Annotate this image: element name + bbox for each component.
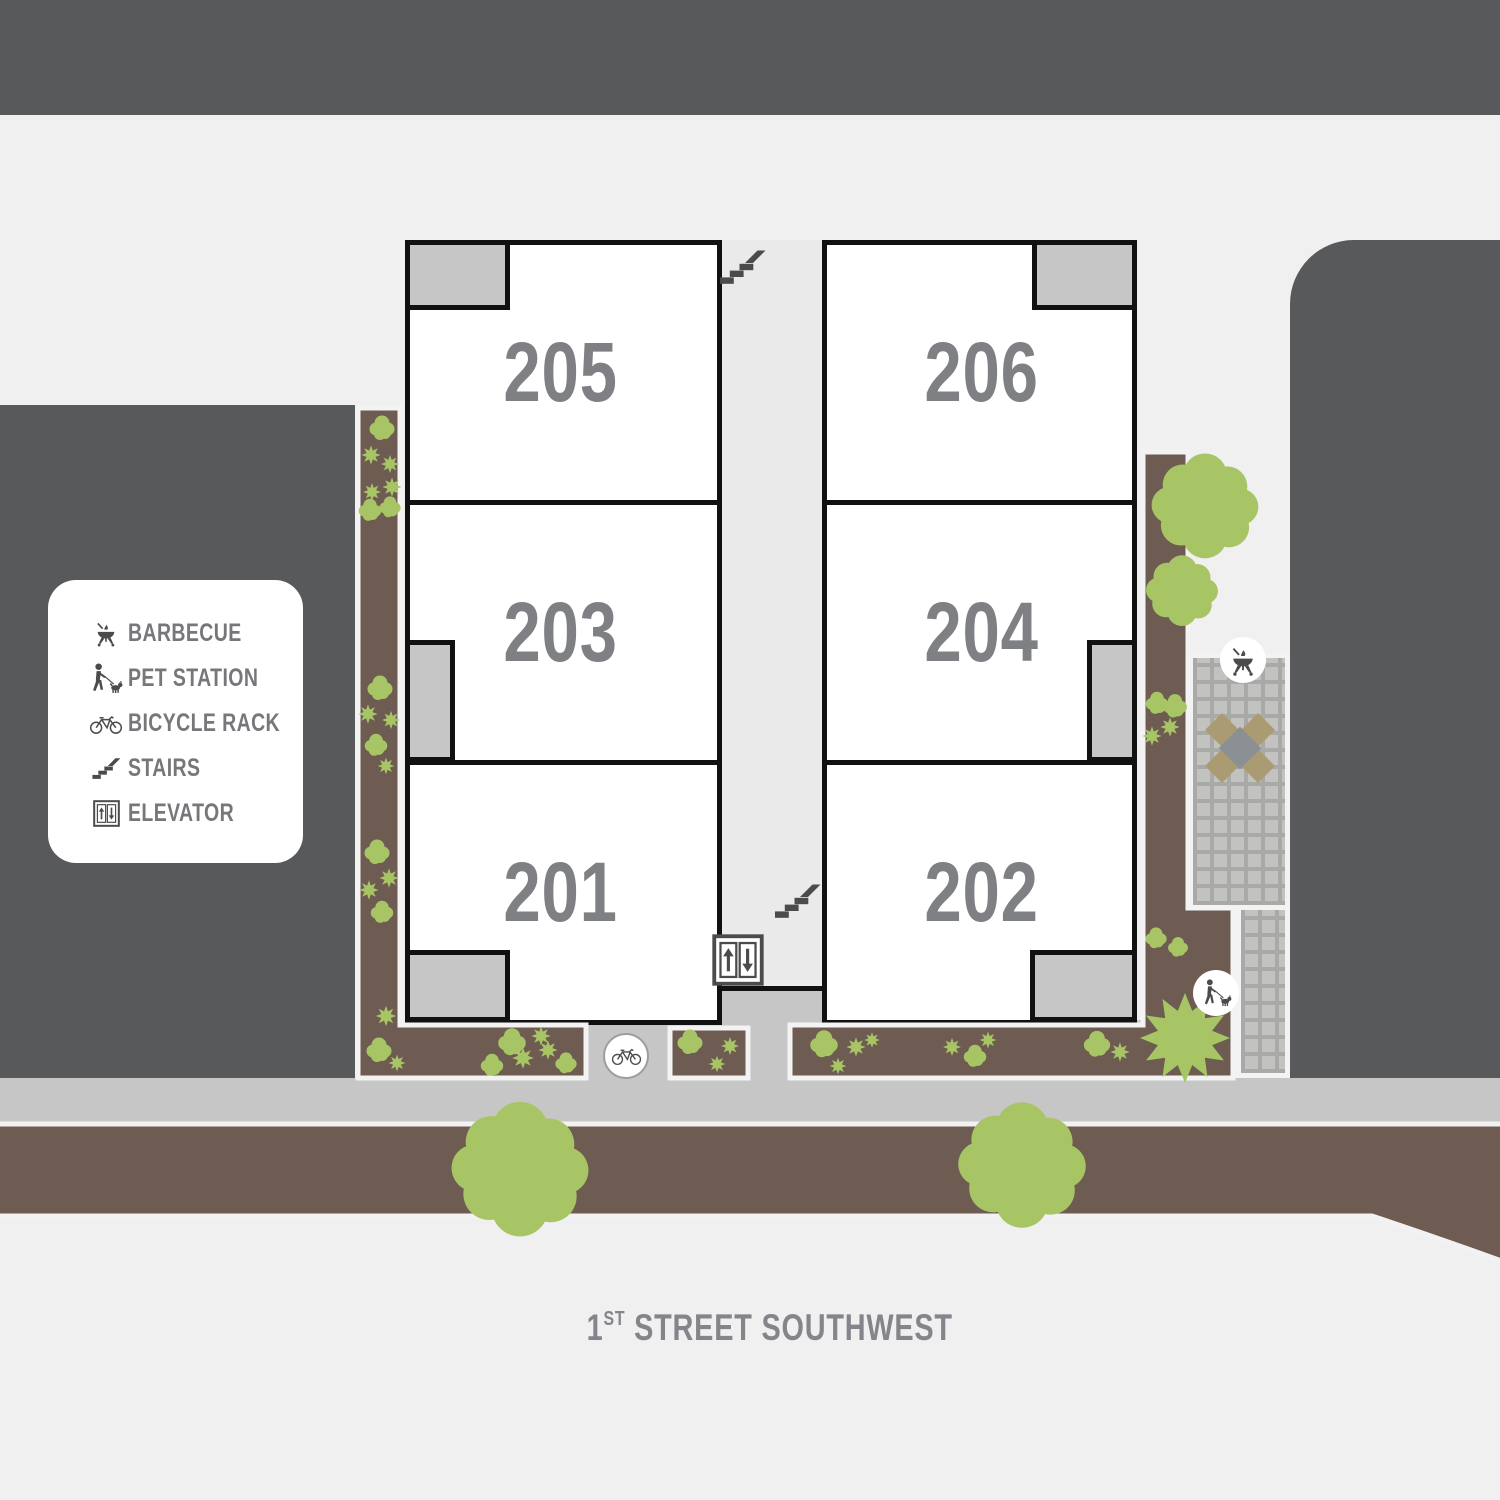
street-number: 1 xyxy=(587,1307,604,1348)
barbecue-marker xyxy=(1220,637,1266,683)
pet-station-marker xyxy=(1193,970,1239,1016)
legend-label: BARBECUE xyxy=(128,619,242,648)
patio-tiles xyxy=(1188,653,1290,910)
unit-206: 206 xyxy=(832,245,1132,500)
patio-tiles xyxy=(1236,905,1290,1078)
stairs-icon xyxy=(720,250,766,284)
tree xyxy=(1152,453,1259,558)
bicycle-rack-icon xyxy=(84,713,128,735)
unit-number: 206 xyxy=(925,324,1040,421)
east-building-block xyxy=(1290,240,1500,1078)
legend-item-bicycle-rack: BICYCLE RACK xyxy=(84,701,303,746)
unit-203: 203 xyxy=(410,505,712,760)
pet-station-icon xyxy=(84,663,128,694)
unit-202: 202 xyxy=(832,765,1132,1020)
unit-number: 202 xyxy=(925,844,1040,941)
elevator-icon xyxy=(712,934,764,986)
bicycle-rack-marker xyxy=(603,1033,649,1079)
unit-number: 203 xyxy=(504,584,619,681)
legend-label: BICYCLE RACK xyxy=(128,709,280,738)
elevator-icon xyxy=(84,800,128,827)
barbecue-icon xyxy=(84,620,128,647)
stairs-icon xyxy=(84,758,128,779)
legend-item-barbecue: BARBECUE xyxy=(84,611,303,656)
unit-number: 205 xyxy=(504,324,619,421)
unit-number: 201 xyxy=(504,844,619,941)
legend-label: ELEVATOR xyxy=(128,799,234,828)
legend-label: STAIRS xyxy=(128,754,200,783)
front-walkway xyxy=(586,1020,1146,1080)
bicycle-rack-icon xyxy=(611,1046,642,1066)
legend-item-elevator: ELEVATOR xyxy=(84,791,303,836)
street-ordinal: ST xyxy=(604,1308,626,1330)
legend: BARBECUE PET STATION BICYCLE RACK STAIRS… xyxy=(48,580,303,863)
site-plan: 205 203 201 206 204 202 xyxy=(0,0,1500,1500)
unit-204: 204 xyxy=(832,505,1132,760)
unit-205: 205 xyxy=(410,245,712,500)
street-name: STREET SOUTHWEST xyxy=(634,1307,953,1348)
stairs-icon xyxy=(775,884,821,918)
entry-walkway xyxy=(722,991,822,1078)
sidewalk xyxy=(0,1078,1500,1122)
street-planting-band xyxy=(0,1118,1500,1278)
barbecue-icon xyxy=(1230,645,1256,676)
legend-item-stairs: STAIRS xyxy=(84,746,303,791)
tree xyxy=(1146,555,1218,626)
legend-item-pet-station: PET STATION xyxy=(84,656,303,701)
unit-201: 201 xyxy=(410,765,712,1020)
unit-number: 204 xyxy=(925,584,1040,681)
north-building-block xyxy=(0,0,1500,115)
pet-station-icon xyxy=(1201,979,1232,1007)
legend-label: PET STATION xyxy=(128,664,258,693)
street-label: 1ST STREET SOUTHWEST xyxy=(540,1298,1000,1358)
